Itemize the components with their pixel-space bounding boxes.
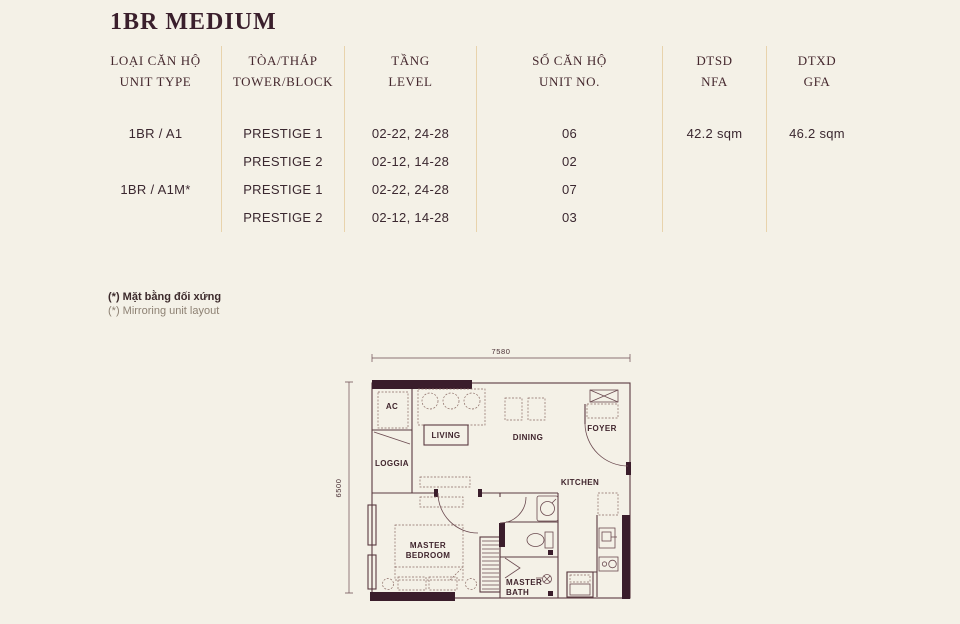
cell-nfa (663, 176, 766, 204)
master-bath-label-1: MASTER (506, 578, 542, 587)
cell-gfa: 46.2 sqm (767, 120, 867, 148)
dresser (420, 497, 463, 507)
cell-gfa (767, 204, 867, 232)
cell-unit-no: 06 (477, 120, 662, 148)
page-title: 1BR MEDIUM (110, 9, 277, 36)
cell-gfa (767, 148, 867, 176)
header-gfa-vi: DTXD (767, 50, 867, 71)
cell-nfa: 42.2 sqm (663, 120, 766, 148)
column-unit-no: SỐ CĂN HỘ UNIT NO. 06 02 07 03 (477, 46, 663, 232)
loggia-label: LOGGIA (375, 459, 409, 468)
header-unit-type: LOẠI CĂN HỘ UNIT TYPE (90, 46, 221, 120)
floor-drain (548, 550, 553, 555)
dining-label: DINING (513, 433, 543, 442)
dining-chair (528, 398, 545, 420)
ac-label: AC (386, 402, 398, 411)
shower-door (505, 558, 520, 578)
cell-tower: PRESTIGE 1 (222, 120, 344, 148)
header-gfa: DTXD GFA (767, 46, 867, 120)
bedroom-bench (398, 577, 426, 590)
cell-tower: PRESTIGE 2 (222, 148, 344, 176)
header-gfa-en: GFA (767, 71, 867, 92)
nightstand-lamp (466, 579, 477, 590)
foyer-cabinet (587, 404, 618, 418)
header-nfa: DTSD NFA (663, 46, 766, 120)
cell-level: 02-12, 14-28 (345, 204, 476, 232)
dining-chair (505, 398, 522, 420)
header-unit-type-en: UNIT TYPE (90, 71, 221, 92)
header-level: TẦNG LEVEL (345, 46, 476, 120)
brochure-page: 1BR MEDIUM LOẠI CĂN HỘ UNIT TYPE 1BR / A… (0, 0, 960, 624)
toilet-tank (545, 532, 553, 548)
toilet-bowl (527, 534, 544, 547)
cell-level: 02-22, 24-28 (345, 120, 476, 148)
kitchen-upper-cabinet (598, 493, 618, 515)
cell-gfa (767, 176, 867, 204)
cell-tower: PRESTIGE 1 (222, 176, 344, 204)
master-bedroom-label-2: BEDROOM (406, 551, 451, 560)
cell-nfa (663, 204, 766, 232)
cell-unit-no: 07 (477, 176, 662, 204)
kitchen-sink (599, 528, 615, 548)
nightstand-lamp (383, 579, 394, 590)
column-tower: TÒA/THÁP TOWER/BLOCK PRESTIGE 1 PRESTIGE… (222, 46, 345, 232)
cell-unit-no: 03 (477, 204, 662, 232)
header-level-vi: TẦNG (345, 50, 476, 71)
column-unit-type: LOẠI CĂN HỘ UNIT TYPE 1BR / A1 1BR / A1M… (90, 46, 222, 232)
cell-unit-type (90, 148, 221, 176)
header-tower-vi: TÒA/THÁP (222, 50, 344, 71)
dimension-width-label: 7580 (491, 347, 510, 356)
kitchen-label: KITCHEN (561, 478, 599, 487)
cell-level: 02-22, 24-28 (345, 176, 476, 204)
walls (368, 383, 630, 598)
cell-unit-type: 1BR / A1 (90, 120, 221, 148)
master-bedroom-label-1: MASTER (410, 541, 446, 550)
header-level-en: LEVEL (345, 71, 476, 92)
header-tower: TÒA/THÁP TOWER/BLOCK (222, 46, 344, 120)
header-unit-no-vi: SỐ CĂN HỘ (477, 50, 662, 71)
header-unit-no-en: UNIT NO. (477, 71, 662, 92)
bedroom-bench (429, 577, 457, 590)
wardrobe-hatch (482, 541, 499, 589)
header-nfa-en: NFA (663, 71, 766, 92)
dimension-height-label: 6500 (334, 478, 343, 497)
footnote: (*) Mặt bằng đối xứng (*) Mirroring unit… (108, 290, 221, 318)
living-label: LIVING (431, 431, 460, 440)
header-nfa-vi: DTSD (663, 50, 766, 71)
column-nfa: DTSD NFA 42.2 sqm (663, 46, 767, 232)
cell-unit-type (90, 204, 221, 232)
fridge (570, 584, 590, 595)
cell-unit-type: 1BR / A1M* (90, 176, 221, 204)
footnote-en: (*) Mirroring unit layout (108, 304, 221, 318)
header-unit-no: SỐ CĂN HỘ UNIT NO. (477, 46, 662, 120)
floorplan-drawing: 7580 6500 (330, 345, 665, 620)
cell-level: 02-12, 14-28 (345, 148, 476, 176)
unit-table: LOẠI CĂN HỘ UNIT TYPE 1BR / A1 1BR / A1M… (90, 46, 867, 232)
floor-drain (548, 591, 553, 596)
sofa (418, 389, 485, 425)
header-tower-en: TOWER/BLOCK (222, 71, 344, 92)
master-bath-label-2: BATH (506, 588, 529, 597)
foyer-label: FOYER (587, 424, 617, 433)
footnote-vi: (*) Mặt bằng đối xứng (108, 290, 221, 304)
header-unit-type-vi: LOẠI CĂN HỘ (90, 50, 221, 71)
column-gfa: DTXD GFA 46.2 sqm (767, 46, 867, 232)
cell-unit-no: 02 (477, 148, 662, 176)
loggia-door (374, 432, 410, 444)
cell-nfa (663, 148, 766, 176)
tv-console (420, 477, 470, 487)
cell-tower: PRESTIGE 2 (222, 204, 344, 232)
column-level: TẦNG LEVEL 02-22, 24-28 02-12, 14-28 02-… (345, 46, 477, 232)
